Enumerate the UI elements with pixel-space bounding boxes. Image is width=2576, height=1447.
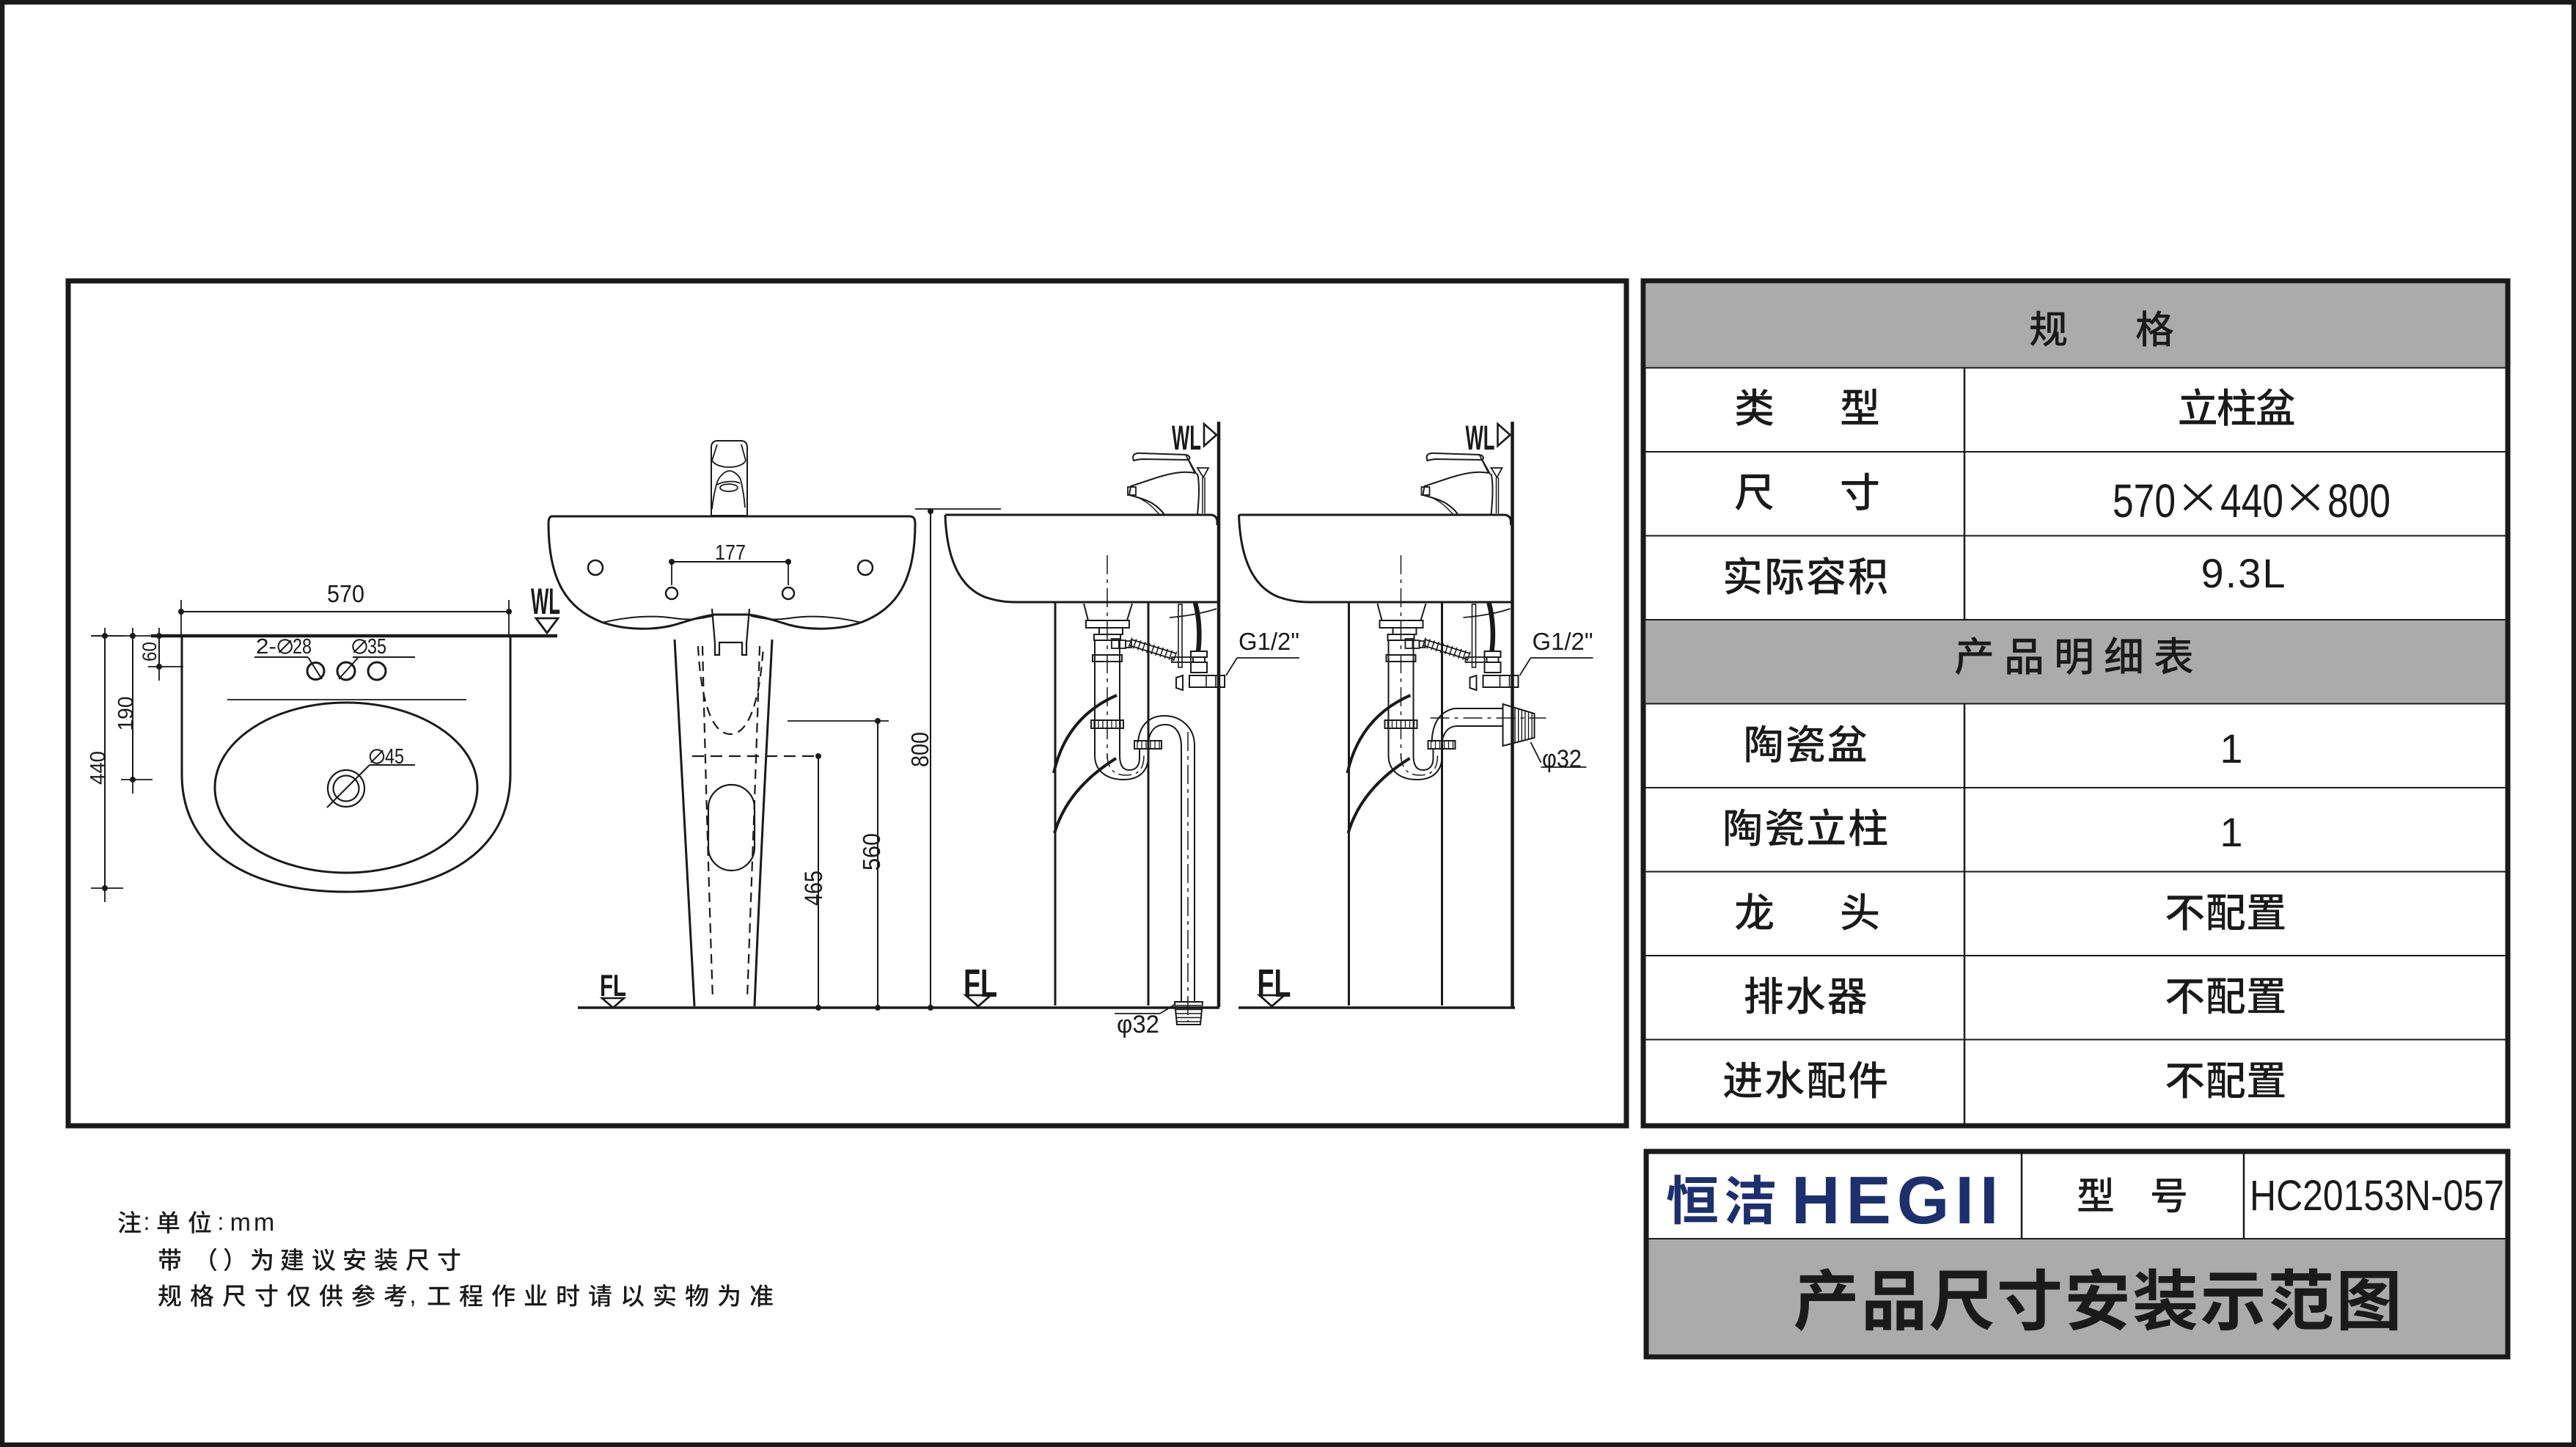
svg-text:190: 190 [114, 697, 138, 731]
svg-text::: : [217, 1208, 224, 1235]
svg-text:45: 45 [385, 745, 404, 769]
svg-text:570: 570 [2113, 475, 2176, 527]
svg-text:WL: WL [531, 581, 560, 622]
svg-text:1: 1 [2220, 725, 2242, 772]
svg-text:WL: WL [1466, 418, 1495, 457]
svg-text:1: 1 [2220, 809, 2242, 855]
svg-text:440: 440 [87, 751, 110, 785]
svg-text:35: 35 [367, 635, 386, 659]
svg-text:HEGII: HEGII [1791, 1163, 2004, 1238]
svg-text:465: 465 [800, 871, 828, 906]
svg-text:,: , [409, 1281, 416, 1308]
svg-text:800: 800 [2327, 475, 2390, 527]
svg-text:800: 800 [907, 732, 934, 767]
svg-text:570: 570 [327, 580, 364, 607]
svg-text:2-: 2- [256, 635, 276, 659]
svg-text:HC20153N-057: HC20153N-057 [2250, 1172, 2504, 1220]
svg-text:560: 560 [859, 833, 886, 871]
svg-text:440: 440 [2220, 475, 2283, 527]
svg-text:G1/2": G1/2" [1239, 628, 1299, 655]
svg-text:9.3L: 9.3L [2201, 550, 2287, 596]
svg-text:φ32: φ32 [1117, 1011, 1159, 1038]
svg-text::: : [143, 1208, 150, 1235]
svg-text:G1/2": G1/2" [1533, 628, 1593, 655]
svg-text:WL: WL [1172, 418, 1201, 457]
svg-text:60: 60 [139, 642, 161, 662]
svg-text:mm: mm [230, 1209, 278, 1237]
svg-text:28: 28 [293, 635, 312, 659]
svg-text:177: 177 [715, 541, 746, 565]
svg-text:φ32: φ32 [1542, 745, 1582, 773]
